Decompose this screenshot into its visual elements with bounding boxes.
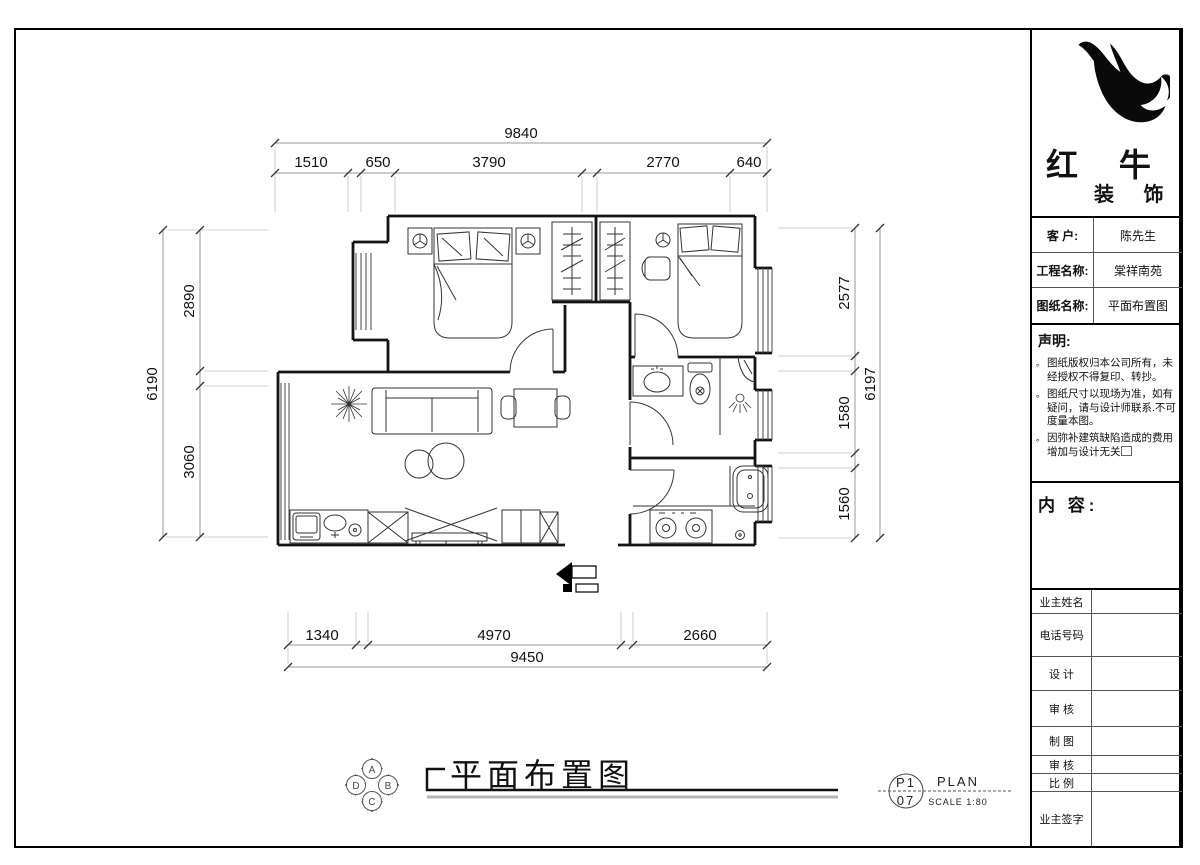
pillow — [437, 232, 471, 261]
cursor-box-mark — [1121, 446, 1132, 456]
window-bathroom — [758, 390, 772, 440]
dim-right-seg1: 2577 — [836, 276, 853, 309]
door-bedroom2 — [635, 314, 678, 357]
bathroom-sink — [644, 372, 670, 392]
dim-right-overall: 6197 — [862, 367, 879, 400]
entrance-arrow-icon — [556, 562, 598, 592]
dim-top-seg5: 640 — [736, 154, 761, 171]
tv-icon — [293, 513, 320, 540]
walls — [278, 216, 772, 545]
company-name-suffix: 装 饰 — [1094, 178, 1176, 207]
desk-chair — [645, 257, 670, 280]
double-bed — [434, 228, 512, 338]
orientation-symbol: A B C D — [345, 758, 399, 812]
pillow — [680, 226, 709, 252]
sheet-number-block: P1 07 PLAN SCALE 1:80 — [878, 774, 1012, 808]
owner-name-value — [1092, 590, 1182, 614]
checker-value — [1092, 756, 1182, 774]
orientation-a: A — [369, 765, 376, 776]
checker-label: 审 核 — [1032, 756, 1092, 774]
dining-table — [514, 389, 557, 427]
statement-item: 因弥补建筑缺陷造成的费用增加与设计无关 — [1038, 432, 1177, 460]
coffee-table — [428, 443, 464, 479]
sheet-scale: SCALE 1:80 — [928, 797, 988, 807]
owner-signature-value — [1092, 792, 1182, 846]
bathroom-fixtures — [633, 357, 755, 435]
kitchen-fixtures — [633, 466, 768, 543]
shower-icon — [729, 394, 751, 413]
dim-left-seg1: 2890 — [181, 284, 198, 317]
dim-bottom-seg2: 4970 — [477, 627, 510, 644]
phone-number-label: 电话号码 — [1032, 614, 1092, 657]
pillow — [711, 226, 740, 252]
title-block: 红 牛 装 饰 客 户: 陈先生 工程名称: 棠祥南苑 图纸名称: 平面布置图 … — [1030, 28, 1182, 848]
window-living-left — [281, 383, 289, 540]
owner-name-label: 业主姓名 — [1032, 590, 1092, 614]
dimension-ticks — [159, 139, 884, 671]
second-bedroom-furniture — [642, 224, 742, 338]
drafter-label: 制 图 — [1032, 727, 1092, 756]
dim-left-overall: 6190 — [144, 367, 161, 400]
window-kitchen — [758, 466, 772, 522]
door-kitchen — [630, 470, 674, 514]
toilet — [688, 363, 712, 404]
sheet-code-top: P1 — [896, 775, 916, 790]
wardrobes — [552, 222, 630, 300]
reviewer-value — [1092, 691, 1182, 727]
small-appliance — [349, 524, 361, 536]
redbull-bird-logo-icon — [1050, 36, 1170, 141]
client-value: 陈先生 — [1094, 218, 1182, 253]
project-name-value: 棠祥南苑 — [1094, 253, 1182, 288]
drafter-value — [1092, 727, 1182, 756]
phone-number-value — [1092, 614, 1182, 657]
dimension-extension-lines — [166, 146, 852, 664]
windows — [281, 253, 772, 540]
dim-right-seg3: 1560 — [836, 487, 853, 520]
statement-heading: 声明: — [1038, 331, 1177, 351]
content-label: 内 容: — [1038, 496, 1098, 515]
company-logo-area: 红 牛 装 饰 — [1032, 28, 1182, 218]
owner-signature-label: 业主签字 — [1032, 792, 1092, 846]
dim-top-seg1: 1510 — [294, 154, 327, 171]
plant-icon — [331, 386, 367, 422]
single-bed — [678, 224, 742, 338]
floor-drain — [736, 531, 745, 540]
dim-top-seg3: 3790 — [472, 154, 505, 171]
shoe-cabinet — [502, 510, 558, 543]
statement-item: 图纸版权归本公司所有，未经授权不得复印、转抄。 — [1038, 357, 1177, 385]
dim-top-seg2: 650 — [365, 154, 390, 171]
tv-counter — [290, 510, 368, 543]
doors — [510, 314, 678, 514]
wash-basin — [324, 515, 346, 531]
stove — [650, 510, 712, 543]
designer-label: 设 计 — [1032, 657, 1092, 691]
master-bedroom-furniture — [408, 228, 540, 338]
bay-window-bedroom1 — [356, 253, 371, 330]
sheet-code-bottom: 07 — [897, 793, 915, 808]
lamp-icon — [413, 234, 535, 248]
designer-value — [1092, 657, 1182, 691]
scale-label: 比 例 — [1032, 774, 1092, 792]
tv-stand-x — [405, 508, 497, 541]
drawing-name-label: 图纸名称: — [1032, 288, 1094, 323]
project-name-label: 工程名称: — [1032, 253, 1094, 288]
bay-window-bedroom2 — [758, 268, 772, 353]
corner-shelf — [738, 357, 755, 382]
cabinet-x-left — [368, 512, 408, 543]
caption-block: 平面布置图 — [427, 757, 838, 797]
content-section: 内 容: — [1032, 483, 1182, 590]
drawing-name-value: 平面布置图 — [1094, 288, 1182, 323]
dim-right-seg2: 1580 — [836, 396, 853, 429]
living-room-furniture — [290, 386, 570, 545]
door-bathroom — [630, 402, 673, 445]
orientation-b: B — [385, 781, 392, 792]
dim-left-seg2: 3060 — [181, 445, 198, 478]
drawing-caption: 平面布置图 — [450, 757, 635, 793]
orientation-c: C — [368, 797, 375, 808]
scale-value — [1092, 774, 1182, 792]
dim-top-seg4: 2770 — [646, 154, 679, 171]
dim-bottom-overall: 9450 — [510, 649, 543, 666]
statement-section: 声明: 图纸版权归本公司所有，未经授权不得复印、转抄。 图纸尺寸以现场为准，如有… — [1032, 325, 1182, 483]
sheet-name: PLAN — [937, 774, 979, 789]
project-info-table: 客 户: 陈先生 工程名称: 棠祥南苑 图纸名称: 平面布置图 — [1032, 218, 1182, 325]
lamp-icon — [656, 233, 670, 247]
signature-fields-table: 业主姓名 电话号码 设 计 审 核 制 图 审 核 比 例 业主签字 — [1032, 590, 1182, 846]
client-label: 客 户: — [1032, 218, 1094, 253]
reviewer-label: 审 核 — [1032, 691, 1092, 727]
dim-bottom-seg3: 2660 — [683, 627, 716, 644]
drawing-sheet: 9840 1510 650 3790 2770 640 1340 4970 26… — [0, 0, 1200, 865]
dim-bottom-seg1: 1340 — [305, 627, 338, 644]
dim-top-overall: 9840 — [504, 125, 537, 142]
door-bedroom1 — [510, 329, 553, 372]
orientation-d: D — [352, 781, 359, 792]
statement-item: 图纸尺寸以现场为准，如有疑问，请与设计师联系.不可度量本图。 — [1038, 388, 1177, 430]
floor-plan-drawing: 9840 1510 650 3790 2770 640 1340 4970 26… — [14, 28, 1030, 848]
